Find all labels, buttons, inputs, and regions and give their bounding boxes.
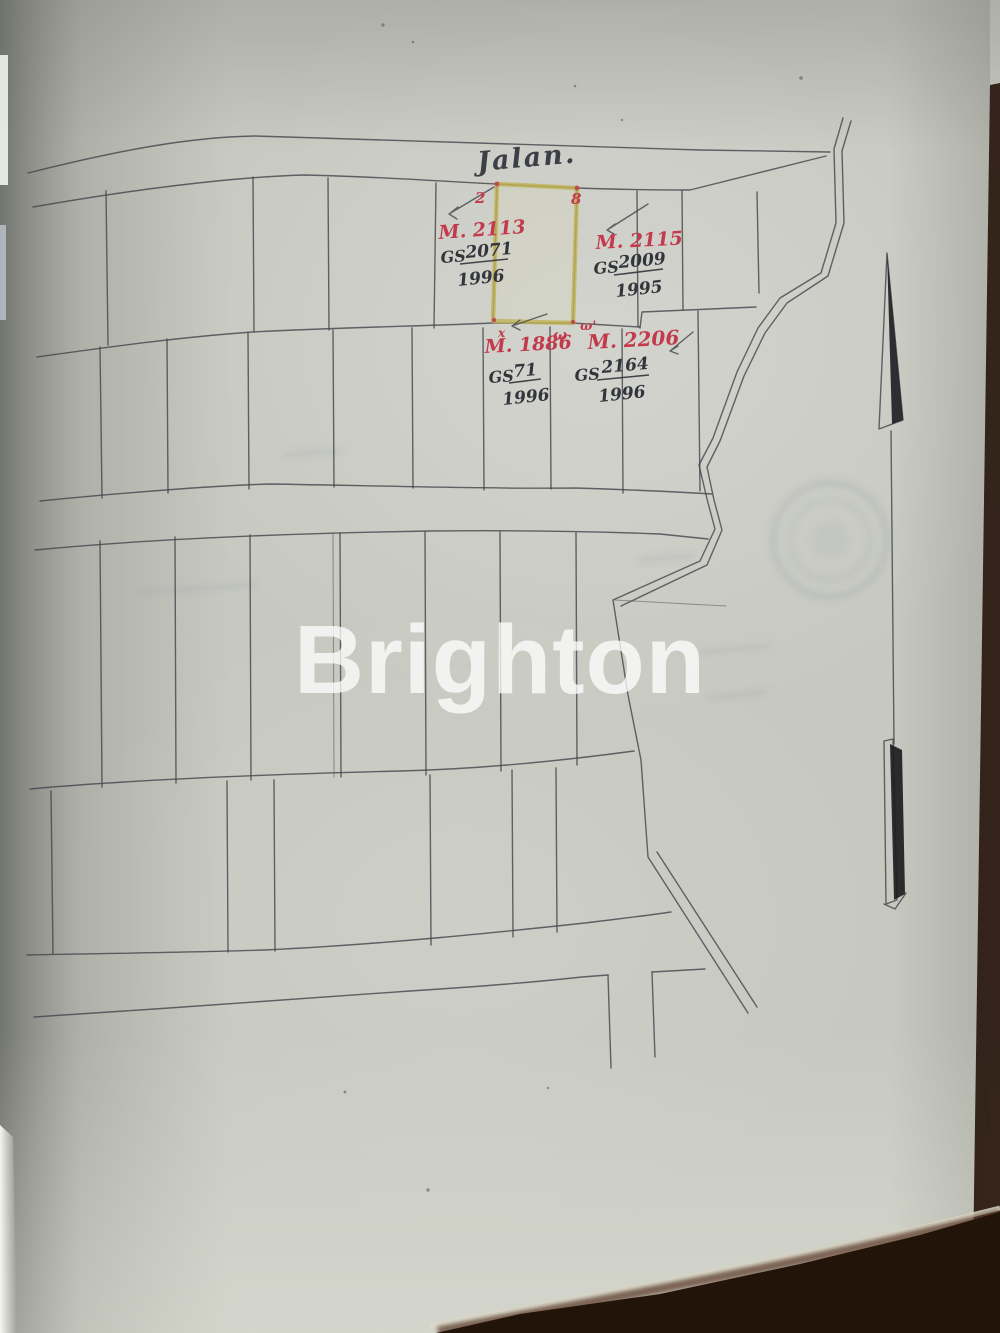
corner-mark-bottom-mid: ω [553,326,567,344]
watermark: Brighton [294,605,706,714]
gs-prefix: GS [488,366,514,387]
parcel-id-label: M. 2206 [586,325,680,354]
gs-prefix: GS [574,364,600,385]
corner-mark-sup: x [497,326,506,340]
corner-mark-top-right: 8 [571,190,582,208]
corner-mark-top-left: 2 [474,189,485,207]
stamp-bleedthrough [773,483,887,597]
photographed-plot-map: Jalan. M. 2113 GS 2071 1996 M. 2115 GS 2… [0,0,1000,1333]
gs-number: 71 [513,360,538,382]
plot-map-canvas: Jalan. M. 2113 GS 2071 1996 M. 2115 GS 2… [0,0,1000,1333]
corner-mark-bottom-right: ω' [580,319,596,334]
gs-number: 2164 [600,354,650,378]
parcel-id-label: M. 2115 [594,227,683,254]
